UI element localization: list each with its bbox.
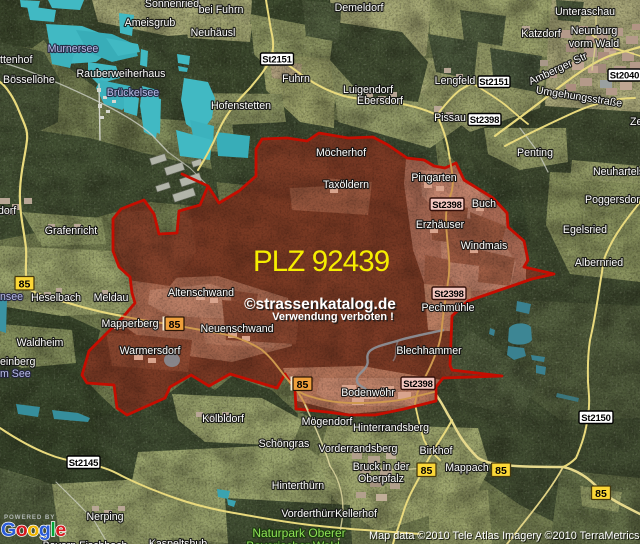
svg-text:Penting: Penting [517,147,553,159]
svg-text:dorf: dorf [0,205,16,217]
svg-text:Verwendung verboten !: Verwendung verboten ! [272,311,394,323]
svg-text:Kellerhof: Kellerhof [335,508,377,520]
svg-text:Vorderthürn: Vorderthürn [281,508,336,520]
svg-text:St2398: St2398 [403,379,432,390]
svg-text:bei Fuhrn: bei Fuhrn [199,4,244,16]
svg-text:Fuhrn: Fuhrn [282,73,310,85]
svg-text:Blechhammer: Blechhammer [396,345,462,357]
svg-text:85: 85 [297,379,309,391]
svg-text:St2151: St2151 [262,55,292,66]
svg-text:Map data ©2010 Tele Atlas Ima: Map data ©2010 Tele Atlas Imagery ©2010 … [369,530,640,542]
svg-text:Grafenricht: Grafenricht [45,225,97,237]
svg-text:Kölbldorf: Kölbldorf [202,413,244,425]
svg-text:Mapperberg: Mapperberg [101,318,158,330]
svg-text:PLZ 92439: PLZ 92439 [253,245,390,278]
svg-text:Bruck in der: Bruck in der [353,461,410,473]
svg-text:Neuhäusl: Neuhäusl [191,27,236,39]
svg-text:Hinterthürn: Hinterthürn [272,480,325,492]
svg-text:Schöngras: Schöngras [259,438,310,450]
svg-text:vorm Wald: vorm Wald [569,38,619,50]
svg-text:Lengfeld: Lengfeld [435,75,476,87]
svg-text:Katzdorf: Katzdorf [521,28,561,40]
svg-text:Albernried: Albernried [575,257,623,269]
svg-text:Brückelsee: Brückelsee [107,87,160,99]
svg-text:Murnersee: Murnersee [48,43,99,55]
svg-text:Sonnenried: Sonnenried [145,0,199,10]
svg-text:Meldau: Meldau [94,292,129,304]
svg-text:Demeldorf: Demeldorf [335,2,384,14]
svg-text:Unteraschau: Unteraschau [555,6,615,18]
svg-text:St2145: St2145 [69,458,99,469]
svg-text:Buch: Buch [472,198,496,210]
svg-text:St2151: St2151 [479,77,509,88]
svg-text:St2398: St2398 [432,200,461,211]
svg-text:Pingarten: Pingarten [411,172,456,184]
svg-text:St2040: St2040 [610,71,639,82]
svg-text:Vorderrandsberg: Vorderrandsberg [319,443,398,455]
svg-text:Waldheim: Waldheim [17,337,64,349]
svg-text:Nerping: Nerping [86,511,123,523]
svg-text:Neuhartelsh: Neuhartelsh [593,166,640,178]
svg-text:Hofenstetten: Hofenstetten [211,100,271,112]
svg-text:St2150: St2150 [581,413,610,424]
svg-text:85: 85 [169,319,181,331]
svg-text:Erzhäuser: Erzhäuser [416,219,465,231]
svg-text:Google: Google [1,519,66,541]
svg-text:Rauberweiherhaus: Rauberweiherhaus [77,68,166,80]
svg-text:St2398: St2398 [470,115,499,126]
svg-text:St2398: St2398 [434,289,463,300]
svg-text:Poggersdor: Poggersdor [585,194,640,206]
svg-text:Windmais: Windmais [461,240,508,252]
svg-text:Bodenwöhr: Bodenwöhr [341,387,395,399]
svg-text:Mögendorf: Mögendorf [302,416,353,428]
svg-text:85: 85 [19,278,31,290]
svg-text:Neuenschwand: Neuenschwand [200,323,273,335]
svg-text:Ebersdorf: Ebersdorf [357,95,403,107]
svg-text:Bayerischer Wald: Bayerischer Wald [246,539,340,544]
svg-text:Mappach: Mappach [445,462,489,474]
svg-text:nsee: nsee [0,291,23,303]
svg-text:Neunburg: Neunburg [571,25,618,37]
svg-text:85: 85 [495,465,507,477]
svg-text:Taxöldern: Taxöldern [323,179,369,191]
svg-text:Ze: Ze [630,116,640,128]
svg-text:m See: m See [0,368,31,380]
svg-text:85: 85 [595,488,607,500]
svg-text:Egelsried: Egelsried [563,224,607,236]
svg-text:Warmersdorf: Warmersdorf [120,345,181,357]
svg-text:Oberpfalz: Oberpfalz [358,473,404,485]
svg-text:Heselbach: Heselbach [31,292,81,304]
svg-text:einberg: einberg [0,356,35,368]
svg-text:Bössellohe: Bössellohe [3,74,55,86]
svg-text:Hinterrandsberg: Hinterrandsberg [353,422,429,434]
svg-text:Ameisgrub: Ameisgrub [125,17,176,29]
svg-text:Kaspeltshub: Kaspeltshub [149,538,207,544]
svg-text:Birkhof: Birkhof [420,445,453,457]
svg-text:Möcherhof: Möcherhof [316,147,366,159]
svg-text:Pissau: Pissau [434,112,466,124]
svg-text:Pechmühle: Pechmühle [422,302,475,314]
svg-text:Naturpark Oberer: Naturpark Oberer [252,526,345,540]
svg-text:85: 85 [421,465,433,477]
svg-text:Altenschwand: Altenschwand [168,287,234,299]
svg-text:ttenhof: ttenhof [0,54,32,66]
